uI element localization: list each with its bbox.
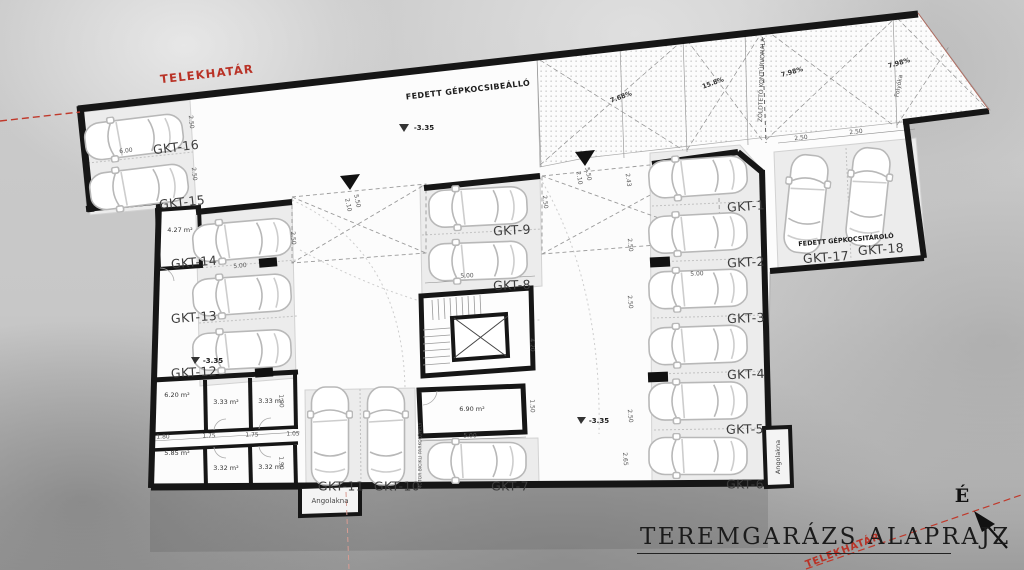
parking-label-gkt18: GKT-18 [857, 240, 904, 258]
drawing-title: TEREMGARÁZS ALAPRAJZ [640, 524, 958, 550]
dim-label: 2.50 [289, 231, 297, 245]
dim-label: 2.65 [621, 452, 629, 466]
dim-label: 1.90 [277, 394, 284, 408]
dim-label: 4.20 [528, 338, 535, 352]
dim-label: 2.50 [626, 409, 634, 423]
dim-label: 1.80 [156, 433, 169, 440]
dim-label: 5.00 [690, 270, 704, 278]
level-marker: -3.35 [589, 417, 609, 425]
dim-label: 2.50 [849, 128, 863, 136]
dim-label: 5.00 [463, 433, 476, 440]
parking-label-gkt5: GKT-5 [726, 421, 764, 437]
parking-label-gkt1: GKT-1 [727, 197, 766, 215]
parking-label-gkt11: GKT-11 [318, 479, 364, 494]
parking-label-gkt17: GKT-17 [802, 248, 849, 266]
parking-label-gkt8: GKT-8 [493, 277, 531, 293]
dim-label: 2.50 [626, 295, 634, 309]
title-underline [637, 553, 951, 554]
dim-label: 5.00 [460, 272, 474, 279]
dim-label: 2.50 [794, 134, 808, 142]
parking-label-gkt7: GKT-7 [491, 479, 529, 494]
level-marker: -3.35 [414, 124, 434, 132]
dim-label: 1.05 [286, 430, 299, 437]
parking-label-gkt9: GKT-9 [493, 222, 532, 239]
level-marker: -3.35 [203, 357, 223, 365]
dim-label: 2.50 [541, 195, 549, 209]
dim-label: 2.50 [190, 167, 198, 181]
light-well-label-right: Angolakna [774, 440, 782, 474]
floorplan-canvas: GKT-1 GKT-2 GKT-3 GKT-4 GKT-5 GKT-6 GKT-… [0, 0, 1024, 570]
stair-core [421, 288, 533, 376]
dim-label: 1.90 [277, 456, 284, 470]
dim-label: 2.50 [187, 115, 195, 129]
room-area-label: 6.90 m² [459, 405, 484, 413]
parking-label-gkt10: GKT-10 [374, 479, 420, 494]
room-area-label: 4.27 m² [167, 226, 192, 234]
dim-label: 1.75 [245, 431, 258, 438]
parking-label-gkt13: GKT-13 [170, 308, 217, 326]
room-area-label: 3.33 m² [213, 398, 238, 406]
dim-label: 1.75 [202, 432, 215, 439]
parking-label-gkt6: GKT-6 [726, 477, 764, 492]
light-well-label-bottom: Angolakna [312, 497, 349, 505]
north-label: É [955, 485, 969, 507]
parking-label-gkt3: GKT-3 [727, 310, 765, 326]
parking-label-gkt4: GKT-4 [727, 366, 765, 382]
room-area-label: 3.32 m² [213, 464, 238, 472]
dim-label: 5.00 [233, 262, 247, 270]
zone-label-moto-parking: MOTOR BICIKLI PARKOLÓHELY [419, 422, 424, 489]
dim-label: 1.50 [528, 399, 535, 413]
parking-label-gkt12: GKT-12 [171, 363, 218, 380]
dim-label: 2.50 [626, 238, 634, 252]
parking-label-gkt2: GKT-2 [727, 254, 766, 271]
room-area-label: 5.85 m² [164, 449, 189, 457]
room-area-label: 6.20 m² [164, 391, 189, 399]
